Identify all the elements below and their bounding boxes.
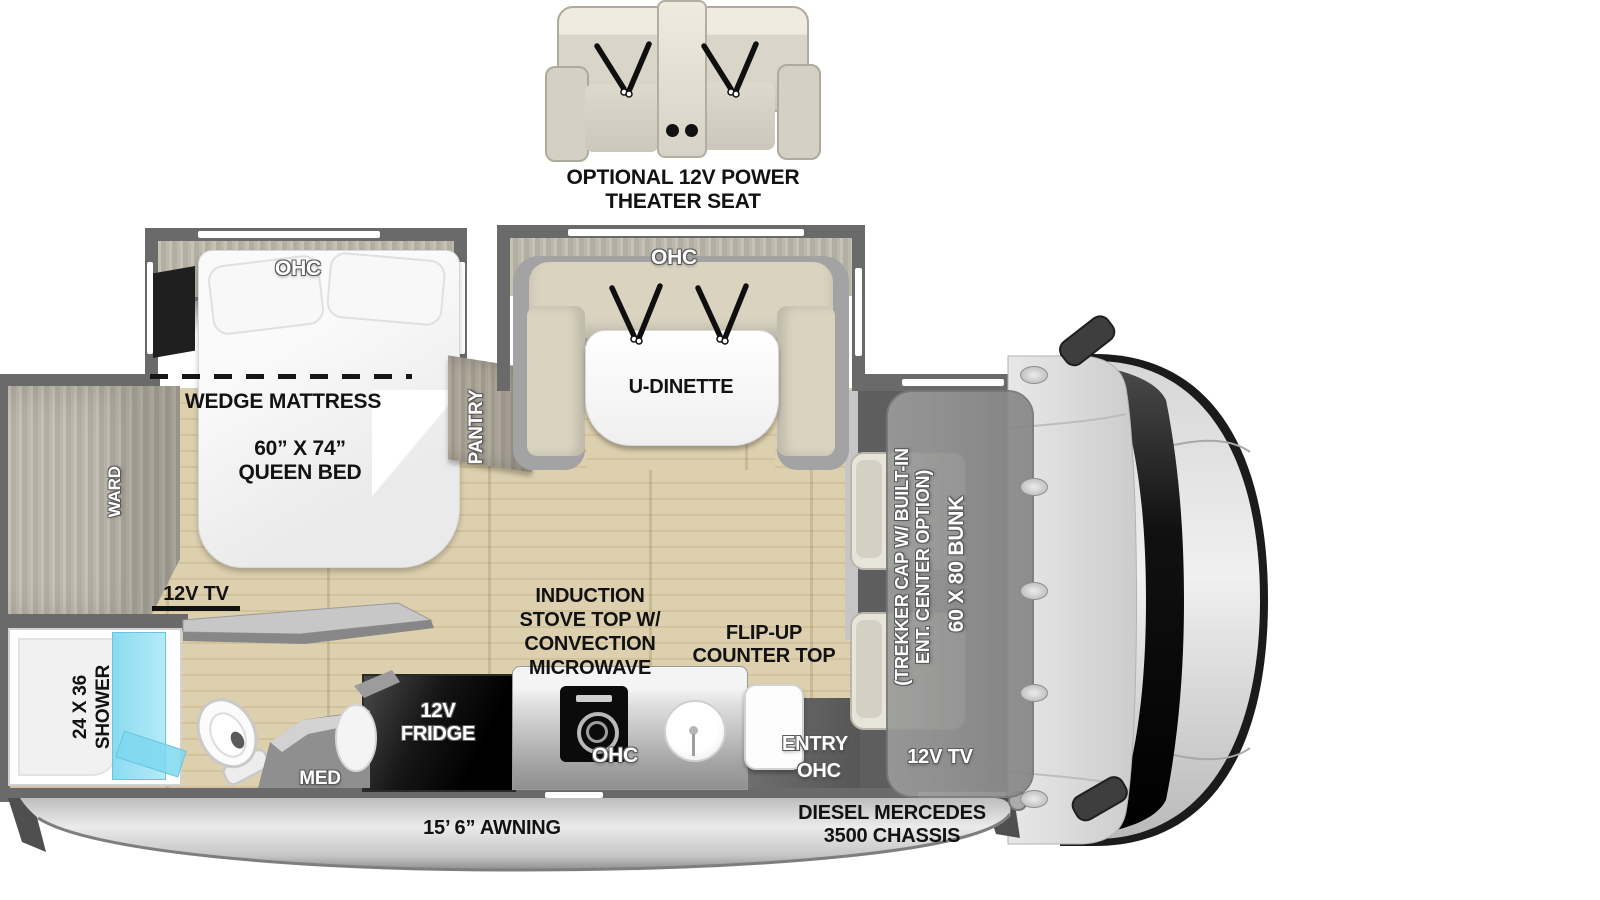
chassis-label-line2: 3500 CHASSIS bbox=[786, 825, 998, 848]
bunk-trekker-label: (TREKKER CAP W/ BUILT-IN ENT. CENTER OPT… bbox=[892, 357, 934, 777]
stove-label-line2: STOVE TOP W/ bbox=[486, 608, 694, 632]
shower-size: 24 X 36 bbox=[70, 642, 93, 772]
seatbelt-buckles bbox=[621, 89, 739, 344]
kitchen-ohc-label: OHC bbox=[583, 744, 647, 768]
shower-label: 24 X 36 SHOWER bbox=[70, 642, 116, 772]
chassis-label: DIESEL MERCEDES 3500 CHASSIS bbox=[786, 802, 998, 848]
flip-up-label: FLIP-UP COUNTER TOP bbox=[674, 622, 854, 668]
stove-label-line4: MICROWAVE bbox=[486, 656, 694, 680]
bedroom-ohc-label: OHC bbox=[258, 257, 338, 281]
shower-name: SHOWER bbox=[93, 642, 116, 772]
entry-ohc-label: OHC bbox=[784, 760, 854, 783]
flip-up-label-line2: COUNTER TOP bbox=[674, 645, 854, 668]
dinette-ohc-label: OHC bbox=[634, 246, 714, 270]
wardrobe-label: WARD bbox=[105, 437, 125, 547]
queen-bed-label: 60” X 74” QUEEN BED bbox=[190, 437, 410, 485]
med-label: MED bbox=[288, 768, 352, 790]
flip-up-label-line1: FLIP-UP bbox=[674, 622, 854, 645]
rv-floorplan: OPTIONAL 12V POWER THEATER SEAT OHC WEDG… bbox=[0, 0, 1600, 900]
theater-seat-label: OPTIONAL 12V POWER THEATER SEAT bbox=[543, 166, 823, 214]
theater-seat-label-line1: OPTIONAL 12V POWER bbox=[543, 166, 823, 190]
stove-label-line3: CONVECTION bbox=[486, 632, 694, 656]
bunk-trekker-line2: ENT. CENTER OPTION) bbox=[913, 357, 934, 777]
theater-seat-label-line2: THEATER SEAT bbox=[543, 190, 823, 214]
fridge-label-line2: FRIDGE bbox=[392, 723, 484, 746]
awning-label: 15’ 6” AWNING bbox=[382, 817, 602, 840]
wedge-mattress-label: WEDGE MATTRESS bbox=[160, 390, 406, 414]
pantry-label: PANTRY bbox=[466, 367, 488, 487]
dinette-label: U-DINETTE bbox=[585, 376, 777, 399]
fridge-label: 12V FRIDGE bbox=[392, 700, 484, 746]
bunk-size-label: 60 X 80 BUNK bbox=[945, 354, 971, 774]
bunk-trekker-line1: (TREKKER CAP W/ BUILT-IN bbox=[892, 357, 913, 777]
bedroom-tv-label: 12V TV bbox=[150, 583, 242, 606]
queen-bed-name: QUEEN BED bbox=[190, 461, 410, 485]
stove-label-line1: INDUCTION bbox=[486, 584, 694, 608]
entry-label: ENTRY bbox=[772, 733, 858, 756]
stove-label: INDUCTION STOVE TOP W/ CONVECTION MICROW… bbox=[486, 584, 694, 680]
queen-bed-size: 60” X 74” bbox=[190, 437, 410, 461]
chassis-label-line1: DIESEL MERCEDES bbox=[786, 802, 998, 825]
bunk-tv-label: 12V TV bbox=[890, 746, 990, 769]
fridge-label-line1: 12V bbox=[392, 700, 484, 723]
bedroom-tv-underline bbox=[152, 606, 240, 611]
